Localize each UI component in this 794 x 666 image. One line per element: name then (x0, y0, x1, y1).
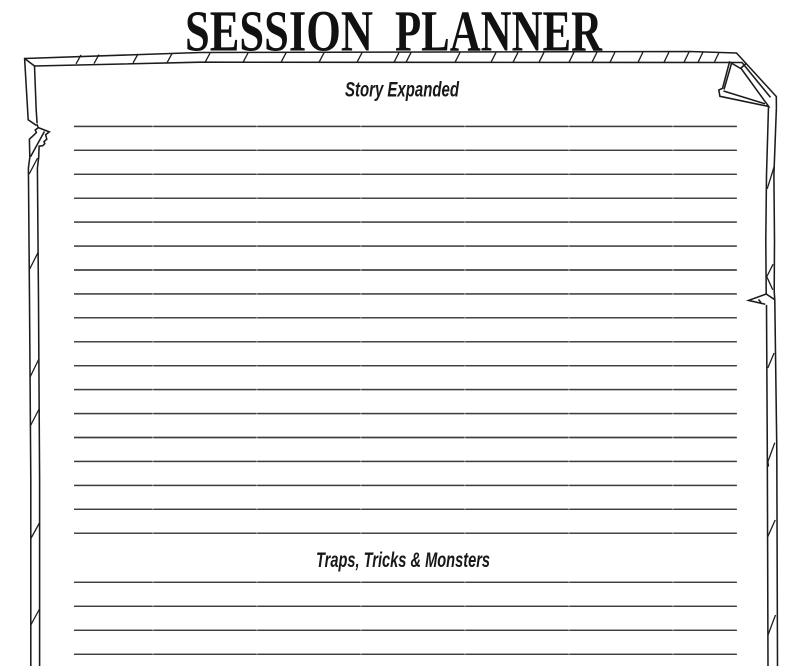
svg-text:Traps, Tricks & Monsters: Traps, Tricks & Monsters (316, 549, 490, 572)
svg-text:SESSION: SESSION (185, 0, 373, 64)
svg-text:Story Expanded: Story Expanded (345, 79, 460, 102)
svg-text:PLANNER: PLANNER (395, 0, 603, 64)
